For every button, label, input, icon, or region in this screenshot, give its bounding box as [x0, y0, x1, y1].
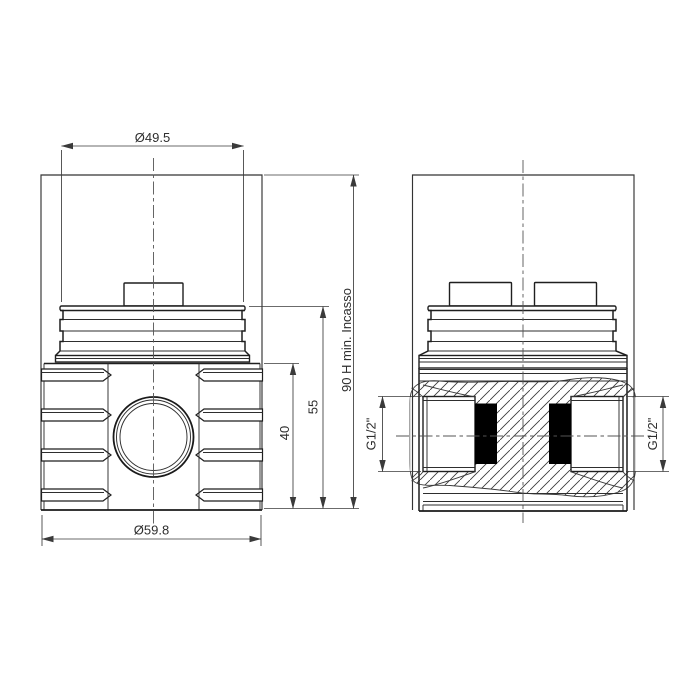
dim-cartridge-height-label: 55 [306, 400, 321, 414]
side-view [396, 160, 651, 523]
dim-recess-depth: 90 H min. Incasso [264, 175, 359, 509]
front-dimensions: Ø49.5 Ø59.8 40 55 90 H min. Incasso [42, 130, 359, 546]
front-cartridge [56, 306, 250, 356]
dim-body-height: 40 [264, 364, 299, 509]
front-rib-bands [42, 369, 263, 501]
dim-top-diameter: Ø49.5 [62, 130, 244, 302]
page: Ø49.5 Ø59.8 40 55 90 H min. Incasso [0, 0, 700, 700]
side-tab-left [450, 283, 512, 307]
dim-body-height-label: 40 [277, 426, 292, 440]
dim-top-diameter-label: Ø49.5 [135, 130, 170, 145]
dim-port-left-label: G1/2" [364, 417, 379, 450]
front-view [41, 158, 263, 524]
dim-port-right-label: G1/2" [645, 417, 660, 450]
dim-bottom-diameter-label: Ø59.8 [134, 523, 169, 538]
front-body [44, 364, 260, 511]
side-tab-right [535, 283, 597, 307]
dim-bottom-diameter: Ø59.8 [42, 515, 261, 546]
front-flange [56, 356, 250, 363]
dim-cartridge-height: 55 [249, 307, 329, 509]
technical-drawing: Ø49.5 Ø59.8 40 55 90 H min. Incasso [0, 0, 700, 700]
dim-recess-depth-label: 90 H min. Incasso [339, 288, 354, 392]
